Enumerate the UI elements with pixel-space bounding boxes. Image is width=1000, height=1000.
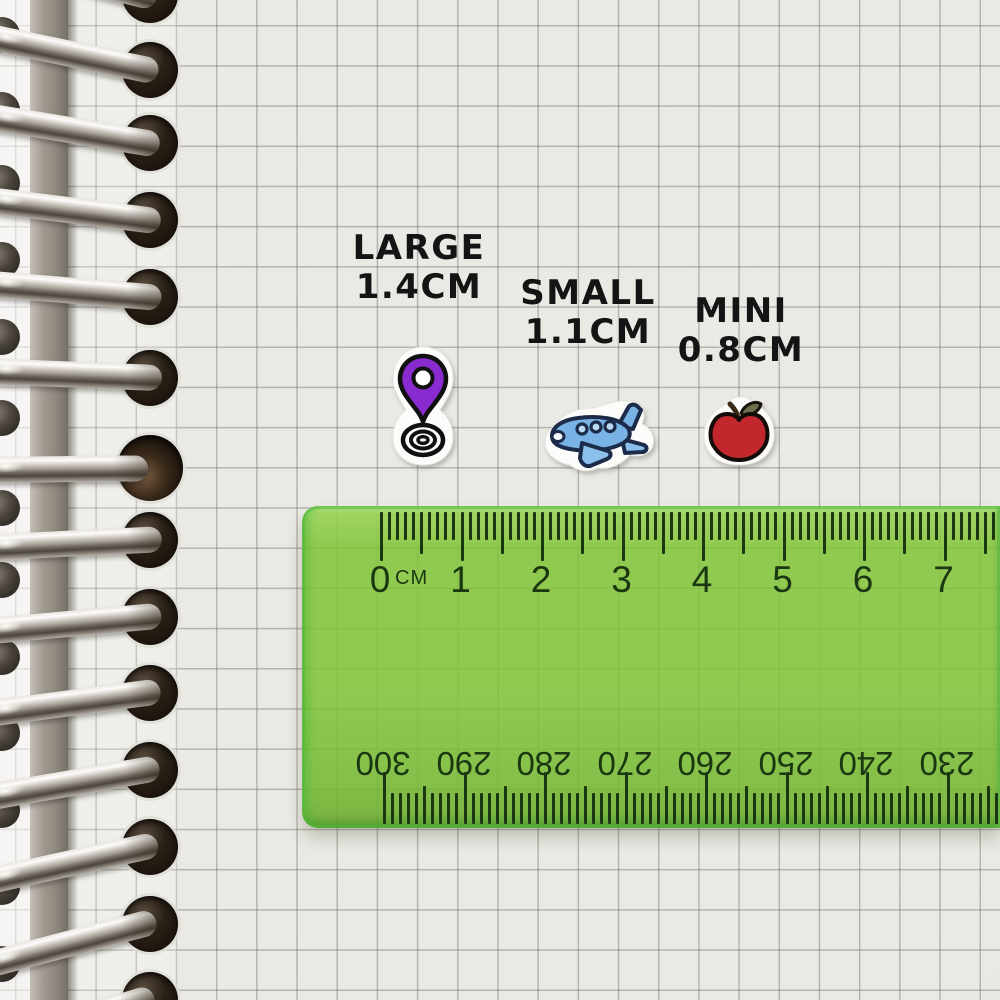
ruler-tick (906, 786, 909, 824)
ruler-cm-number: 3 (611, 559, 632, 601)
ruler-tick (834, 793, 837, 824)
ruler-tick (971, 793, 974, 824)
ruler-tick (412, 512, 415, 540)
plane-window (591, 422, 601, 432)
ruler-tick (758, 512, 761, 540)
ruler-tick (447, 793, 450, 824)
ruler-tick (710, 512, 713, 540)
ruler-mm-number: 280 (516, 744, 571, 782)
ruler-mm-number: 240 (838, 744, 893, 782)
apple-body (711, 414, 768, 460)
ruler-tick (963, 793, 966, 824)
ruler-tick (399, 793, 402, 824)
ruler-tick (774, 512, 777, 540)
ruler-cm-number: 6 (853, 559, 874, 601)
ruler-tick (533, 512, 536, 540)
ruler-tick (428, 512, 431, 540)
ruler-cm-number: 2 (531, 559, 552, 601)
ruler-tick (436, 512, 439, 540)
ruler-tick (573, 512, 576, 540)
ruler-tick (890, 793, 893, 824)
ruler-tick (670, 512, 673, 540)
ruler-tick (992, 512, 995, 540)
ruler-tick (597, 512, 600, 540)
ruler-tick (584, 786, 587, 824)
ruler-tick (439, 793, 442, 824)
airplane-sticker (542, 399, 658, 473)
plane-nose-highlight (552, 432, 564, 442)
ruler-mm-number: 260 (677, 744, 732, 782)
ruler-tick (850, 793, 853, 824)
ruler-tick (734, 512, 737, 540)
ruler-tick (472, 793, 475, 824)
ruler-tick (501, 512, 504, 554)
ruler-tick (568, 793, 571, 824)
ruler-cm-number: 0 (370, 559, 391, 601)
ruler-tick (622, 512, 625, 561)
ruler-tick (589, 512, 592, 540)
label-mini-size: 0.8CM (641, 331, 841, 370)
ruler-tick (469, 512, 472, 540)
ruler-tick (608, 793, 611, 824)
ruler-tick (557, 512, 560, 540)
ruler-tick (633, 793, 636, 824)
ruler-tick (882, 793, 885, 824)
ruler-tick (930, 793, 933, 824)
ruler-mm-number: 230 (919, 744, 974, 782)
ruler-tick (396, 512, 399, 540)
ruler-tick (794, 793, 797, 824)
ruler-tick (750, 512, 753, 540)
ruler-tick (874, 793, 877, 824)
ruler-tick (423, 786, 426, 824)
ruler-tick (431, 793, 434, 824)
ruler-tick (452, 512, 455, 540)
ruler-tick (654, 512, 657, 540)
plane-window (605, 422, 615, 432)
label-mini: MINI 0.8CM (641, 292, 841, 370)
ruler-tick (839, 512, 842, 540)
ruler-tick (777, 793, 780, 824)
ruler-tick (444, 512, 447, 540)
ruler-tick (927, 512, 930, 540)
ruler-mm-number: 300 (355, 744, 410, 782)
ruler-tick (380, 512, 383, 561)
ruler-tick (815, 512, 818, 540)
ruler-tick (525, 512, 528, 540)
ruler-tick (613, 512, 616, 540)
ruler: CM 01234567300290280270260250240230 (302, 506, 1000, 828)
ruler-tick (541, 512, 544, 561)
ruler-unit-label: CM (395, 567, 428, 590)
ruler-tick (697, 793, 700, 824)
ruler-tick (729, 793, 732, 824)
ruler-mm-number: 290 (436, 744, 491, 782)
ruler-tick (391, 793, 394, 824)
ruler-tick (560, 793, 563, 824)
ruler-tick (922, 793, 925, 824)
ruler-tick (493, 512, 496, 540)
ruler-tick (388, 512, 391, 540)
ruler-tick (512, 793, 515, 824)
ruler-cm-number: 1 (450, 559, 471, 601)
ruler-tick (581, 512, 584, 554)
ruler-tick (630, 512, 633, 540)
ruler-tick (766, 512, 769, 540)
ruler-tick (871, 512, 874, 540)
ruler-tick (831, 512, 834, 540)
ruler-tick (818, 793, 821, 824)
ruler-tick (863, 512, 866, 561)
label-mini-name: MINI (641, 292, 841, 331)
ruler-tick (657, 793, 660, 824)
ruler-tick (968, 512, 971, 540)
ruler-tick (407, 793, 410, 824)
ruler-cm-number: 5 (772, 559, 793, 601)
ruler-cm-number: 7 (933, 559, 954, 601)
ruler-tick (662, 512, 665, 554)
ruler-tick (810, 793, 813, 824)
ruler-tick (903, 512, 906, 554)
ruler-tick (761, 793, 764, 824)
ruler-tick (987, 786, 990, 824)
ruler-tick (914, 793, 917, 824)
ruler-tick (678, 512, 681, 540)
ruler-tick (686, 512, 689, 540)
ruler-tick (509, 512, 512, 540)
ruler-tick (783, 512, 786, 561)
ruler-tick (979, 793, 982, 824)
ruler-tick (911, 512, 914, 540)
ruler-tick (791, 512, 794, 540)
ruler-tick (995, 793, 998, 824)
ruler-tick (769, 793, 772, 824)
location-pin-sticker (384, 344, 462, 468)
ruler-tick (976, 512, 979, 540)
ruler-tick (673, 793, 676, 824)
ruler-tick (887, 512, 890, 540)
ruler-tick (952, 512, 955, 540)
ruler-tick (742, 512, 745, 554)
ruler-tick (592, 793, 595, 824)
ruler-tick (496, 793, 499, 824)
ruler-tick (955, 793, 958, 824)
ruler-tick (605, 512, 608, 540)
ruler-tick (520, 793, 523, 824)
ruler-tick (552, 793, 555, 824)
ruler-tick (504, 786, 507, 824)
ruler-tick (702, 512, 705, 561)
ruler-mm-number: 270 (597, 744, 652, 782)
ruler-tick (879, 512, 882, 540)
ruler-tick (737, 793, 740, 824)
ruler-tick (480, 793, 483, 824)
ruler-tick (488, 793, 491, 824)
ruler-tick (847, 512, 850, 540)
ruler-tick (753, 793, 756, 824)
spine-gap (30, 0, 68, 1000)
notebook-photo: LARGE 1.4CM SMALL 1.1CM MINI 0.8CM (0, 0, 1000, 1000)
ruler-tick (745, 786, 748, 824)
ruler-tick (461, 512, 464, 561)
ruler-tick (646, 512, 649, 540)
ruler-tick (404, 512, 407, 540)
ruler-tick (895, 512, 898, 540)
ruler-tick (898, 793, 901, 824)
ruler-tick (807, 512, 810, 540)
ruler-tick (721, 793, 724, 824)
ruler-tick (665, 786, 668, 824)
ruler-tick (984, 512, 987, 554)
ruler-tick (616, 793, 619, 824)
ruler-tick (576, 793, 579, 824)
ruler-tick (935, 512, 938, 540)
ruler-tick (477, 512, 480, 540)
ruler-tick (415, 793, 418, 824)
ruler-tick (528, 793, 531, 824)
ruler-tick (802, 793, 805, 824)
ruler-tick (517, 512, 520, 540)
ruler-tick (858, 793, 861, 824)
ruler-tick (638, 512, 641, 540)
ruler-tick (726, 512, 729, 540)
ruler-tick (713, 793, 716, 824)
ruler-tick (960, 512, 963, 540)
label-large-name: LARGE (319, 229, 519, 268)
ruler-tick (536, 793, 539, 824)
pin-hole (414, 369, 433, 388)
ruler-tick (565, 512, 568, 540)
ruler-tick (689, 793, 692, 824)
ruler-tick (485, 512, 488, 540)
ruler-tick (718, 512, 721, 540)
ruler-tick (938, 793, 941, 824)
ruler-tick (549, 512, 552, 540)
ruler-tick (681, 793, 684, 824)
ruler-tick (919, 512, 922, 540)
ruler-mm-number: 250 (758, 744, 813, 782)
ruler-tick (649, 793, 652, 824)
ruler-tick (799, 512, 802, 540)
ruler-tick (842, 793, 845, 824)
ruler-tick (944, 512, 947, 561)
ruler-tick (855, 512, 858, 540)
binder-ring (0, 455, 148, 483)
ruler-tick (420, 512, 423, 554)
ruler-cm-number: 4 (692, 559, 713, 601)
ruler-tick (694, 512, 697, 540)
ruler-tick (641, 793, 644, 824)
ruler-tick (455, 793, 458, 824)
plane-window (577, 424, 587, 434)
ruler-tick (826, 786, 829, 824)
apple-sticker (701, 396, 777, 468)
ruler-tick (600, 793, 603, 824)
ruler-tick (823, 512, 826, 554)
